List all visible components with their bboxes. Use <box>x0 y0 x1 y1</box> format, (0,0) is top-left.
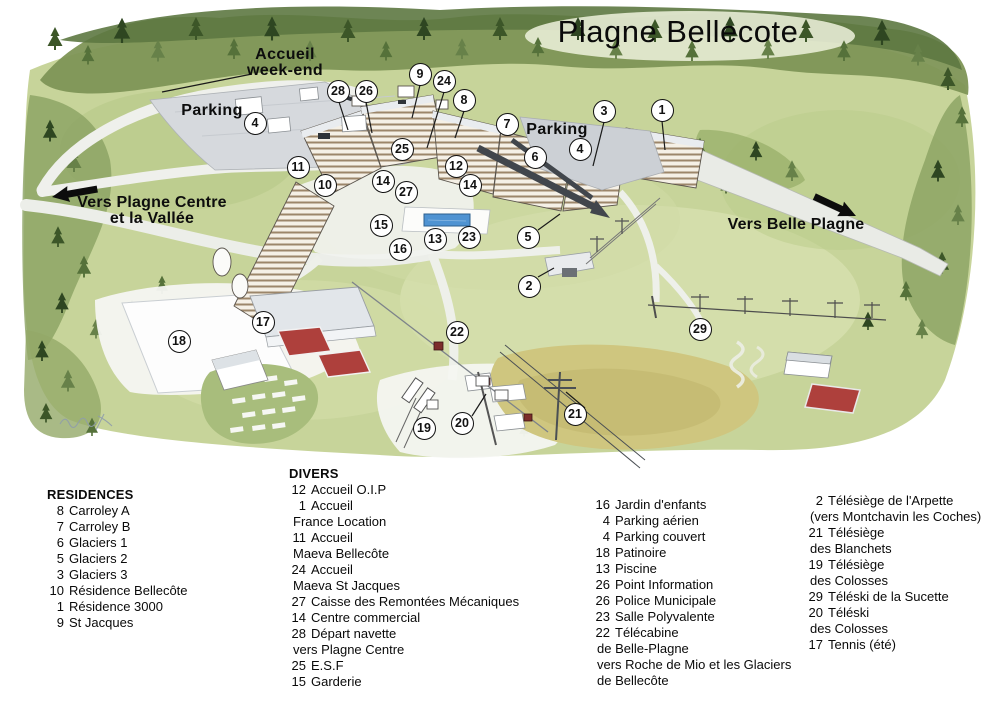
map-marker-28: 28 <box>327 80 350 103</box>
map-marker-14: 14 <box>372 170 395 193</box>
legend-item: 16Jardin d'enfants <box>593 497 791 513</box>
map-marker-16: 16 <box>389 238 412 261</box>
legend-item: vers Plagne Centre <box>289 642 519 658</box>
map-marker-24: 24 <box>433 70 456 93</box>
legend-item: 12Accueil O.I.P <box>289 482 519 498</box>
legend-item: 13Piscine <box>593 561 791 577</box>
label-vers-belle-plagne: Vers Belle Plagne <box>728 217 865 233</box>
legend-item: des Colosses <box>806 573 981 589</box>
map-marker-23: 23 <box>458 226 481 249</box>
legend-item: 22Télécabine <box>593 625 791 641</box>
map-marker-19: 19 <box>413 417 436 440</box>
legend-item: 28Départ navette <box>289 626 519 642</box>
legend-item: 19Télésiège <box>806 557 981 573</box>
label-accueil-weekend: Accueilweek-end <box>247 47 323 80</box>
legend-item: des Blanchets <box>806 541 981 557</box>
legend-column-residences: RESIDENCES 8Carroley A7Carroley B6Glacie… <box>47 487 188 631</box>
map-marker-9: 9 <box>409 63 432 86</box>
legend-item: 11Accueil <box>289 530 519 546</box>
map-marker-20: 20 <box>451 412 474 435</box>
legend-item: Maeva St Jacques <box>289 578 519 594</box>
legend-item: 20Téléski <box>806 605 981 621</box>
legend-item: 7Carroley B <box>47 519 188 535</box>
legend-item: 15Garderie <box>289 674 519 690</box>
legend-item: 26Point Information <box>593 577 791 593</box>
legend-item: de Belle-Plagne <box>593 641 791 657</box>
legend-item: 1Accueil <box>289 498 519 514</box>
legend-item: 21Télésiège <box>806 525 981 541</box>
legend-item: 2Télésiège de l'Arpette <box>806 493 981 509</box>
legend-item: 6Glaciers 1 <box>47 535 188 551</box>
legend-item: France Location <box>289 514 519 530</box>
map-marker-15: 15 <box>370 214 393 237</box>
legend-column-lifts: 2Télésiège de l'Arpette(vers Montchavin … <box>806 493 981 653</box>
legend-item: 17Tennis (été) <box>806 637 981 653</box>
legend-item: 5Glaciers 2 <box>47 551 188 567</box>
legend-item: (vers Montchavin les Coches) <box>806 509 981 525</box>
map-marker-12: 12 <box>445 155 468 178</box>
legend-item: 9St Jacques <box>47 615 188 631</box>
legend-item: 14Centre commercial <box>289 610 519 626</box>
map-marker-21: 21 <box>564 403 587 426</box>
map-marker-8: 8 <box>453 89 476 112</box>
map-marker-2: 2 <box>518 275 541 298</box>
map-marker-6: 6 <box>524 146 547 169</box>
legend-item: 25E.S.F <box>289 658 519 674</box>
map-marker-26: 26 <box>355 80 378 103</box>
label-parking-center: Parking <box>526 122 588 138</box>
legend-item: Maeva Bellecôte <box>289 546 519 562</box>
map-marker-29: 29 <box>689 318 712 341</box>
label-parking-west: Parking <box>181 103 243 119</box>
legend-item: 24Accueil <box>289 562 519 578</box>
map-marker-18: 18 <box>168 330 191 353</box>
map-marker-11: 11 <box>287 156 310 179</box>
legend-item: 27Caisse des Remontées Mécaniques <box>289 594 519 610</box>
legend-item: 23Salle Polyvalente <box>593 609 791 625</box>
map-illustration <box>0 0 1000 470</box>
map-marker-13: 13 <box>424 228 447 251</box>
map-marker-22: 22 <box>446 321 469 344</box>
legend-item: 3Glaciers 3 <box>47 567 188 583</box>
map-title: Plagne Bellecote <box>558 14 799 50</box>
label-vers-plagne-centre: Vers Plagne Centreet la Vallée <box>77 195 226 228</box>
map-marker-27: 27 <box>395 181 418 204</box>
legend-item: 10Résidence Bellecôte <box>47 583 188 599</box>
map-marker-1: 1 <box>651 99 674 122</box>
map-marker-10: 10 <box>314 174 337 197</box>
map-marker-4: 4 <box>569 138 592 161</box>
plagne-bellecote-resort-map: Plagne Bellecote Accueilweek-endParkingP… <box>0 0 1000 707</box>
legend-item: 1Résidence 3000 <box>47 599 188 615</box>
legend-item: 8Carroley A <box>47 503 188 519</box>
map-marker-3: 3 <box>593 100 616 123</box>
legend-column-services: 16Jardin d'enfants4Parking aérien4Parkin… <box>593 497 791 689</box>
legend-item: des Colosses <box>806 621 981 637</box>
map-marker-7: 7 <box>496 113 519 136</box>
legend-item: vers Roche de Mio et les Glaciers <box>593 657 791 673</box>
map-marker-4: 4 <box>244 112 267 135</box>
legend-item: 18Patinoire <box>593 545 791 561</box>
legend-item: 29Téléski de la Sucette <box>806 589 981 605</box>
legend-title-residences: RESIDENCES <box>47 487 188 503</box>
legend-title-divers: DIVERS <box>289 466 519 482</box>
legend-item: 26Police Municipale <box>593 593 791 609</box>
legend-item: 4Parking aérien <box>593 513 791 529</box>
map-marker-25: 25 <box>391 138 414 161</box>
legend-item: 4Parking couvert <box>593 529 791 545</box>
map-marker-14: 14 <box>459 174 482 197</box>
legend-column-divers: DIVERS 12Accueil O.I.P1AccueilFrance Loc… <box>289 466 519 690</box>
map-marker-5: 5 <box>517 226 540 249</box>
legend-item: de Bellecôte <box>593 673 791 689</box>
map-marker-17: 17 <box>252 311 275 334</box>
